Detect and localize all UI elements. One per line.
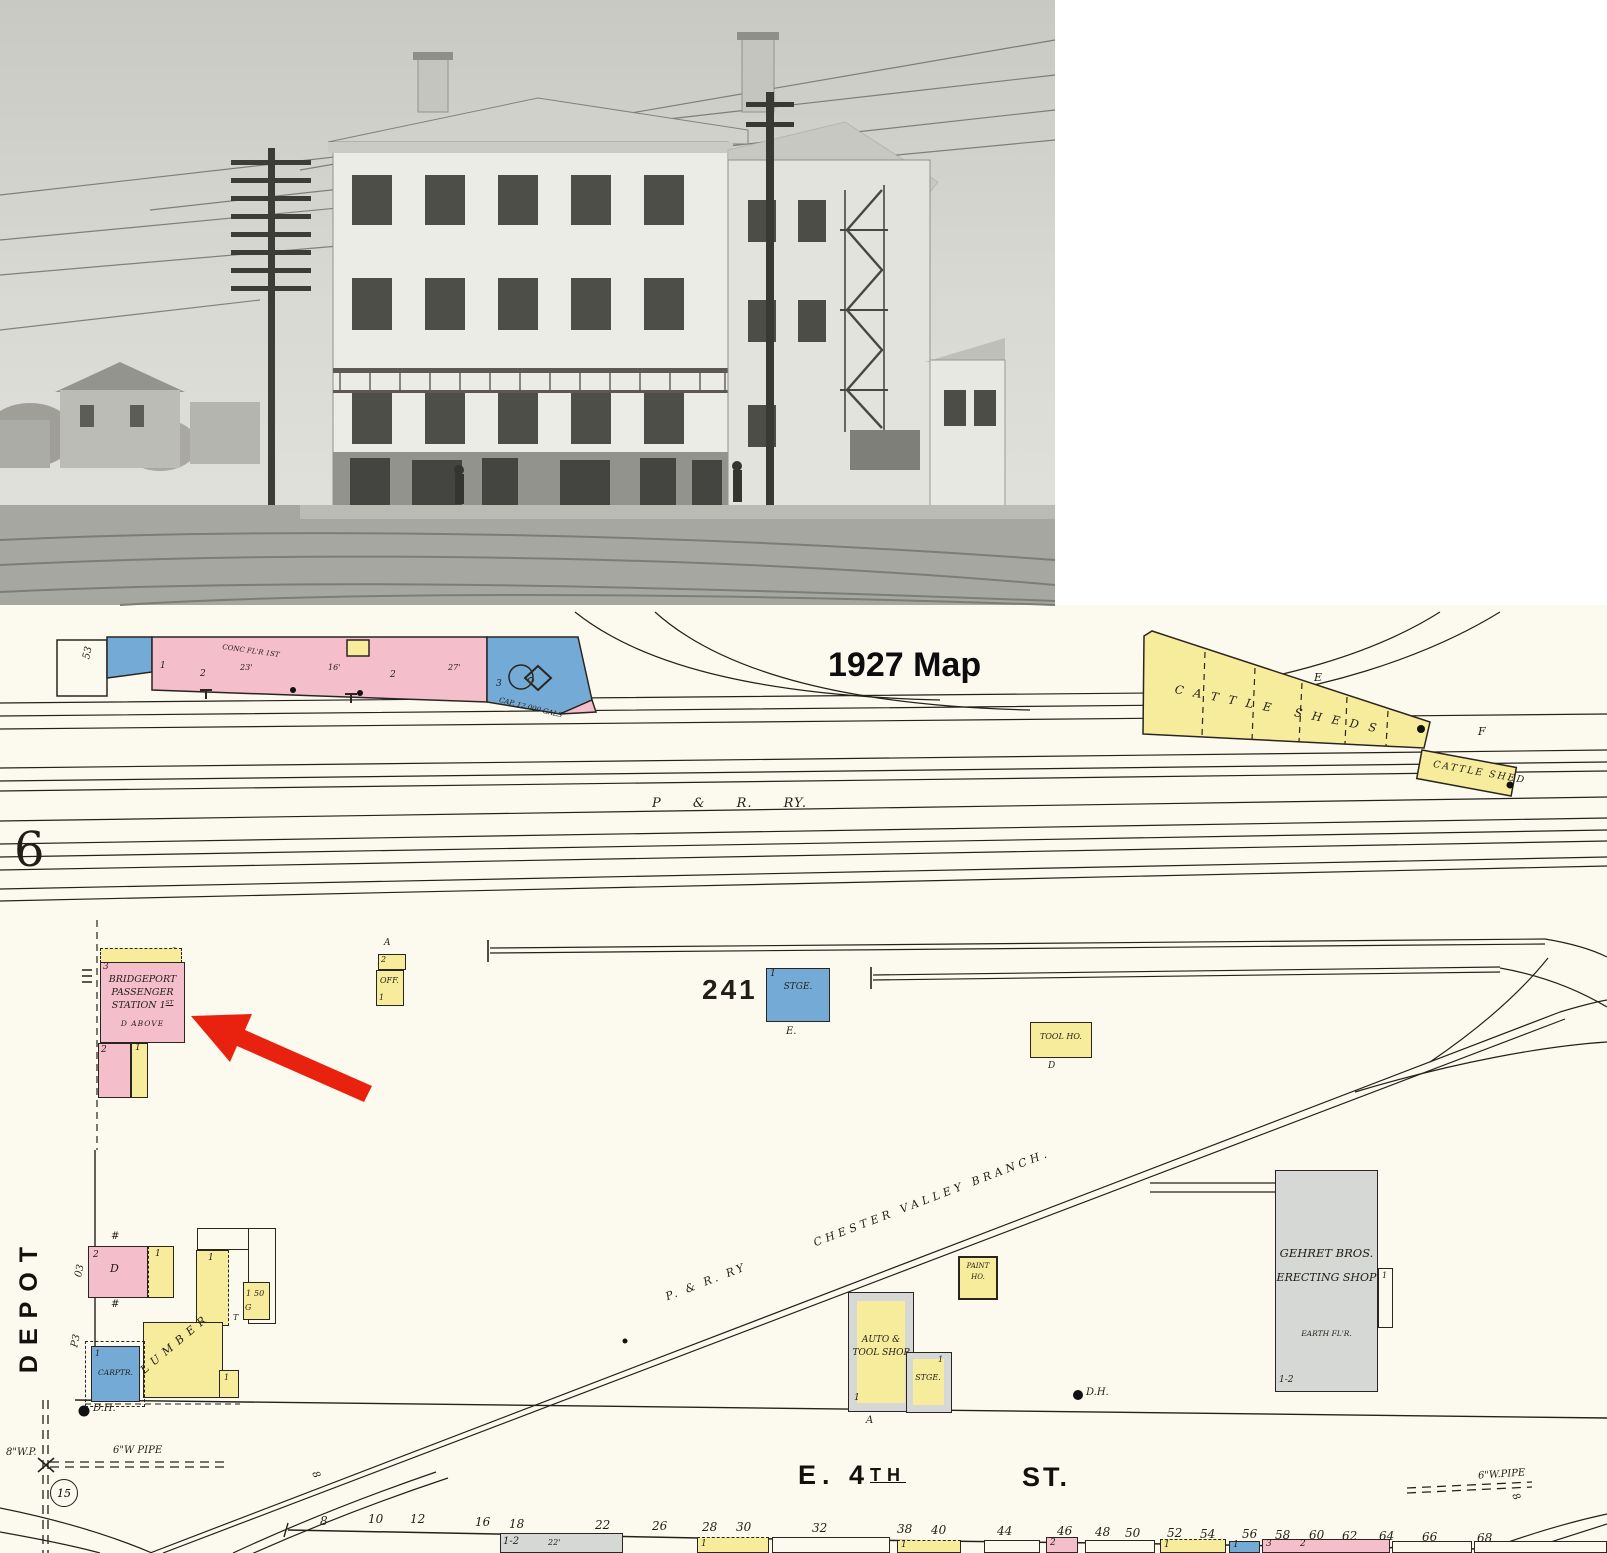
strip-width-23: 23' [240, 664, 252, 672]
lot-number: 44 [997, 1525, 1012, 1537]
lot-number: 8 [320, 1515, 328, 1527]
bottom-pink2-floors-a: 3 [1266, 1540, 1272, 1549]
station-floors-2: 2 [101, 1046, 107, 1055]
small-box-50: 50 [254, 1290, 264, 1298]
strip-floors-2b: 2 [390, 671, 396, 680]
lot-number: 40 [931, 1524, 946, 1536]
lot-number: 58 [1275, 1529, 1290, 1541]
auto-shop-label-2: TOOL SHOP [850, 1349, 912, 1358]
bottom-floors: 1 [901, 1541, 907, 1550]
strip-floors: 1 [160, 662, 166, 671]
valve-number: 15 [57, 1487, 71, 1500]
station-name-line3-text: STATION 1 [112, 1000, 166, 1011]
gehret-name-line2: ERECTING SHOP [1276, 1272, 1377, 1283]
drive-hydrant-right: D.H. [1086, 1388, 1109, 1398]
gehret-name-line1: GEHRET BROS. [1276, 1248, 1377, 1260]
small-box-floors: 1 [246, 1290, 251, 1298]
bottom-building [984, 1540, 1040, 1553]
lot-number: 54 [1200, 1528, 1215, 1540]
strip-width-16: 16' [328, 664, 340, 672]
lot-number: 30 [736, 1521, 751, 1533]
bottom-building [697, 1537, 769, 1553]
lot-number: 26 [652, 1520, 667, 1532]
lot-number: 62 [1342, 1530, 1357, 1542]
station-name-line3: STATION 1ST [103, 1001, 182, 1011]
station-floors-3: 3 [103, 963, 109, 972]
main-line-label: P & R. RY. [652, 797, 807, 810]
station-name-line3-sup: ST [166, 1000, 174, 1006]
auto-shop-label-1: AUTO & [850, 1336, 912, 1345]
page-number: 6 [14, 826, 45, 874]
paint-house-label-2: HO. [959, 1274, 997, 1281]
auto-stge-floors: 1 [938, 1356, 943, 1364]
station-floors-1: 1 [135, 1044, 141, 1053]
station-name-line1: BRIDGEPORT [103, 975, 182, 985]
lot-number: 52 [1167, 1527, 1182, 1539]
office-label: OFF. [380, 977, 399, 985]
strip-floors-3: 3 [496, 680, 502, 689]
storage-label: STGE. [768, 983, 828, 992]
carpenter-label: CARPTR. [92, 1369, 139, 1377]
bottom-pink2-floors-b: 2 [1300, 1540, 1306, 1549]
valve-number-badge: 15 [50, 1479, 78, 1507]
street-name-e4: E. 4 [798, 1460, 870, 1490]
lot-number: 66 [1422, 1531, 1437, 1543]
tool-house-label: TOOL HO. [1031, 1033, 1091, 1041]
auto-stge-label: STGE. [909, 1374, 947, 1382]
bottom-gray-width: 22' [548, 1539, 560, 1547]
lot-number: 60 [1309, 1529, 1324, 1541]
auto-stge-inner [913, 1359, 944, 1405]
auto-shop-floors: 1 [854, 1394, 860, 1403]
sanborn-map-page: 1927 Map 6 P & R. RY. P. & R. RY CHESTER… [0, 0, 1607, 1553]
bottom-building [1160, 1539, 1226, 1553]
bottom-building [772, 1537, 890, 1553]
lot-number: 48 [1095, 1526, 1110, 1538]
dwelling-wing-floors: 1 [155, 1250, 161, 1259]
street-name-th: TH [870, 1465, 906, 1485]
cattle-sheds-marker: E [1314, 672, 1322, 683]
cattle-shed-small-marker: F [1478, 726, 1486, 737]
gehret-earth-floor: EARTH FL'R. [1276, 1330, 1377, 1338]
lot-number: 38 [897, 1523, 912, 1535]
dwelling-marker-d: D [110, 1263, 119, 1274]
bottom-building [1474, 1541, 1607, 1553]
map-paper [0, 605, 1607, 1553]
lot-number: 16 [475, 1516, 490, 1528]
office-floors-1: 1 [379, 994, 384, 1002]
paint-house-label-1: PAINT [959, 1263, 997, 1270]
pipe-6w-label: 6"W PIPE [113, 1446, 162, 1456]
carpenter-floors: 1 [95, 1350, 100, 1358]
lot-number: 18 [509, 1518, 524, 1530]
lot-number: 46 [1057, 1525, 1072, 1537]
storage-floors: 1 [770, 970, 776, 979]
lot-number: 12 [410, 1513, 425, 1525]
street-name-st: ST. [1022, 1464, 1070, 1491]
small-yellow-box [243, 1282, 270, 1320]
lot-number: 50 [1125, 1527, 1140, 1539]
gehret-annex-floors: 1 [1382, 1272, 1387, 1280]
dwelling-floors-2: 2 [93, 1251, 99, 1260]
lot-number: 68 [1477, 1532, 1492, 1544]
marker-g: G [245, 1304, 251, 1312]
bottom-pink-floors: 2 [1050, 1539, 1056, 1548]
office-floors-2: 2 [381, 956, 386, 964]
yellow-tall-floors: 1 [208, 1254, 214, 1263]
hash-mark-top: # [111, 1232, 119, 1242]
lot-number: 56 [1242, 1528, 1257, 1540]
street-name-e4th: E. 4TH [798, 1462, 906, 1489]
station-canopy [100, 948, 182, 963]
drive-hydrant-left: D.H. [93, 1404, 116, 1414]
marker-t: T [233, 1314, 238, 1322]
lot-number: 22 [595, 1519, 610, 1531]
office-marker-a: A [384, 939, 391, 948]
bottom-blue-floors: 1 [1233, 1541, 1239, 1550]
gehret-floors: 1-2 [1279, 1376, 1294, 1385]
station-d-above: D ABOVE [103, 1020, 182, 1028]
bottom-floors: 1 [1164, 1541, 1170, 1550]
depot-street-name: DEPOT [17, 1230, 53, 1380]
station-name-line2: PASSENGER [103, 988, 182, 998]
tool-house-marker-d: D [1048, 1062, 1055, 1071]
storage-marker-e: E. [786, 1027, 796, 1037]
lot-number: 28 [702, 1521, 717, 1533]
strip-width-27: 27' [448, 664, 460, 672]
map-title: 1927 Map [828, 648, 981, 682]
bottom-building [1085, 1540, 1155, 1553]
bottom-floors: 1 [701, 1540, 707, 1549]
pipe-8wp-label: 8"W.P. [6, 1448, 37, 1458]
lot-241: 241 [702, 976, 758, 1004]
bottom-gray-floors: 1-2 [503, 1537, 519, 1547]
auto-shop-marker-a: A [866, 1416, 873, 1426]
strip-floors-2a: 2 [200, 670, 206, 679]
hash-mark-bottom: # [111, 1300, 119, 1310]
dwelling-d-wing [148, 1246, 174, 1298]
lot-number: 64 [1379, 1530, 1394, 1542]
historic-photo [0, 0, 1055, 605]
small-shed-floors: 1 [224, 1374, 229, 1382]
lot-number: 10 [368, 1513, 383, 1525]
lot-number: 32 [812, 1522, 827, 1534]
